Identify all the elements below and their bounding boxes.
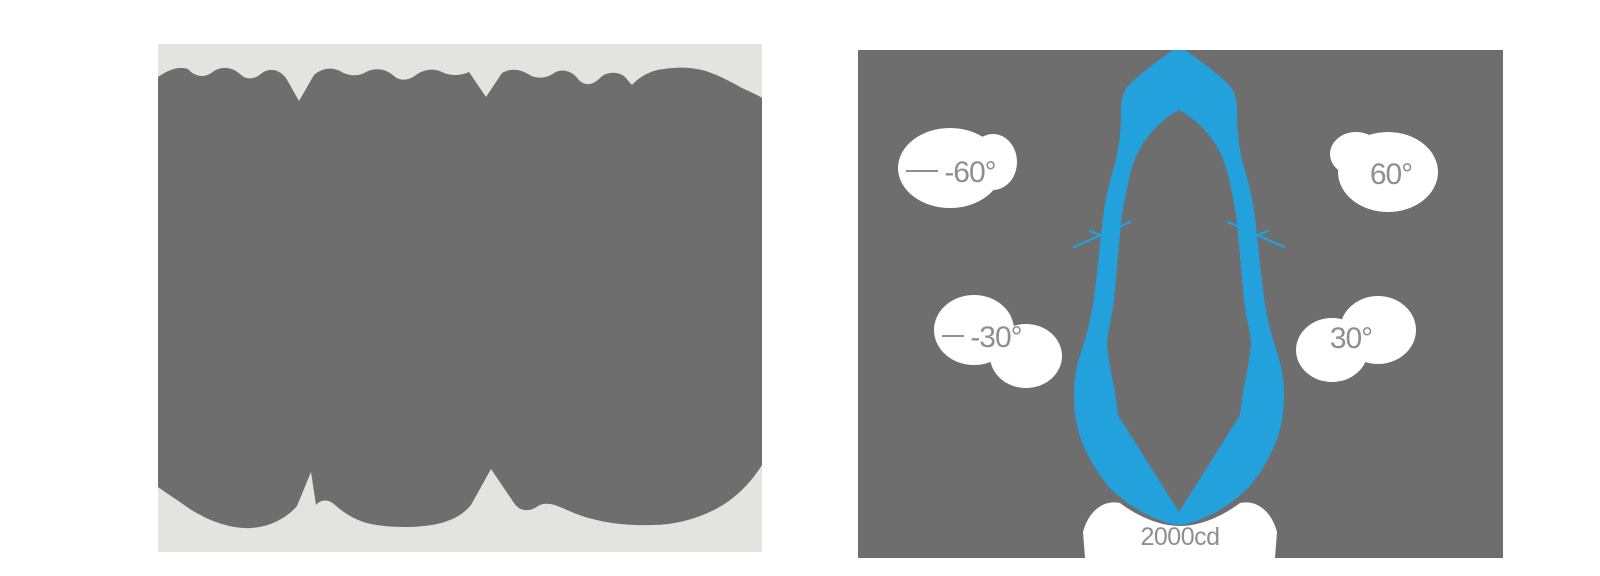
product-silhouette-blob [158,68,762,528]
product-image-panel [158,44,762,552]
light-distribution-panel: -60° 60° -30° 30° [858,50,1503,558]
polar-light-distribution-chart: -60° 60° -30° 30° [858,50,1503,558]
angle-label-text: -30° [970,321,1021,354]
product-silhouette-figure [158,44,762,552]
angle-label-text: 30° [1330,322,1372,355]
candela-label-text: 2000cd [1140,523,1219,551]
angle-label-text: 60° [1370,158,1412,191]
angle-label-text: -60° [944,156,995,189]
